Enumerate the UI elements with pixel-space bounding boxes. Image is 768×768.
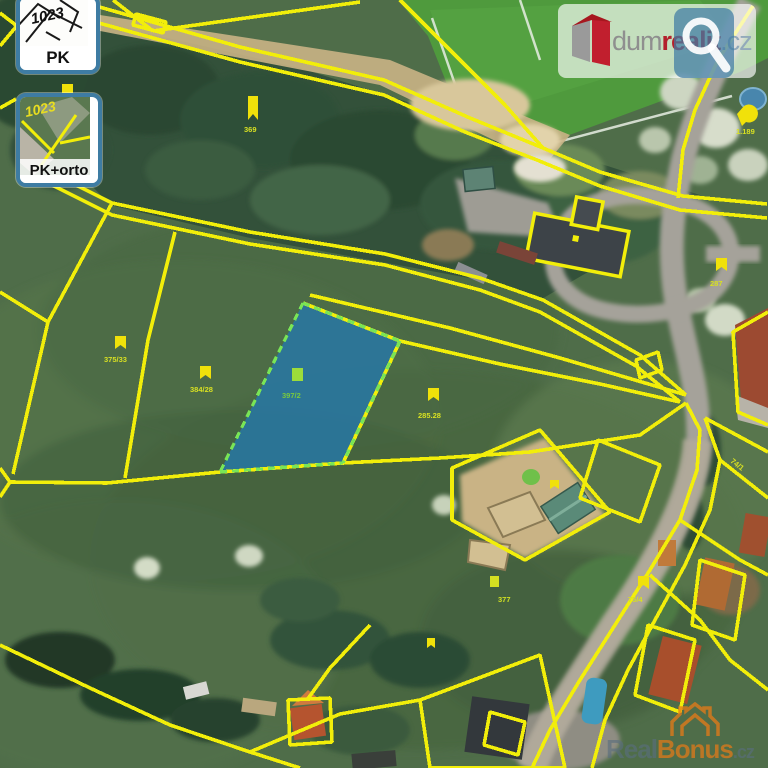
highlighted-parcel-label: 397/2 (282, 391, 301, 400)
parcel-label: 384/28 (190, 385, 213, 394)
dumrealit-house-icon (570, 12, 614, 68)
layer-button-pk-orto[interactable]: 1023 PK+orto (16, 93, 102, 187)
cadastral-map-view: 375/33 384/28 397/2 285.28 369 1.189 287… (0, 0, 768, 768)
pk-button-label: PK (20, 46, 96, 70)
search-zoom-button[interactable] (674, 8, 734, 78)
parcel-label: 287 (710, 279, 723, 288)
parcel-label: 377 (498, 595, 511, 604)
layer-button-pk[interactable]: 1023 PK (16, 0, 100, 74)
parcel-label: 369 (244, 125, 257, 134)
logo-part-dum: dum (612, 26, 662, 56)
pk-orto-button-label: PK+orto (20, 159, 98, 183)
highlighted-parcel-marker (292, 368, 303, 381)
parcel-label: 375/33 (104, 355, 127, 364)
parcel-label: 285.28 (418, 411, 441, 420)
aerial-map[interactable]: 375/33 384/28 397/2 285.28 369 1.189 287… (0, 0, 768, 768)
parcel-label: 75/4 (628, 595, 643, 604)
parcel-label: 1.189 (736, 127, 755, 136)
magnifier-icon (674, 8, 734, 78)
